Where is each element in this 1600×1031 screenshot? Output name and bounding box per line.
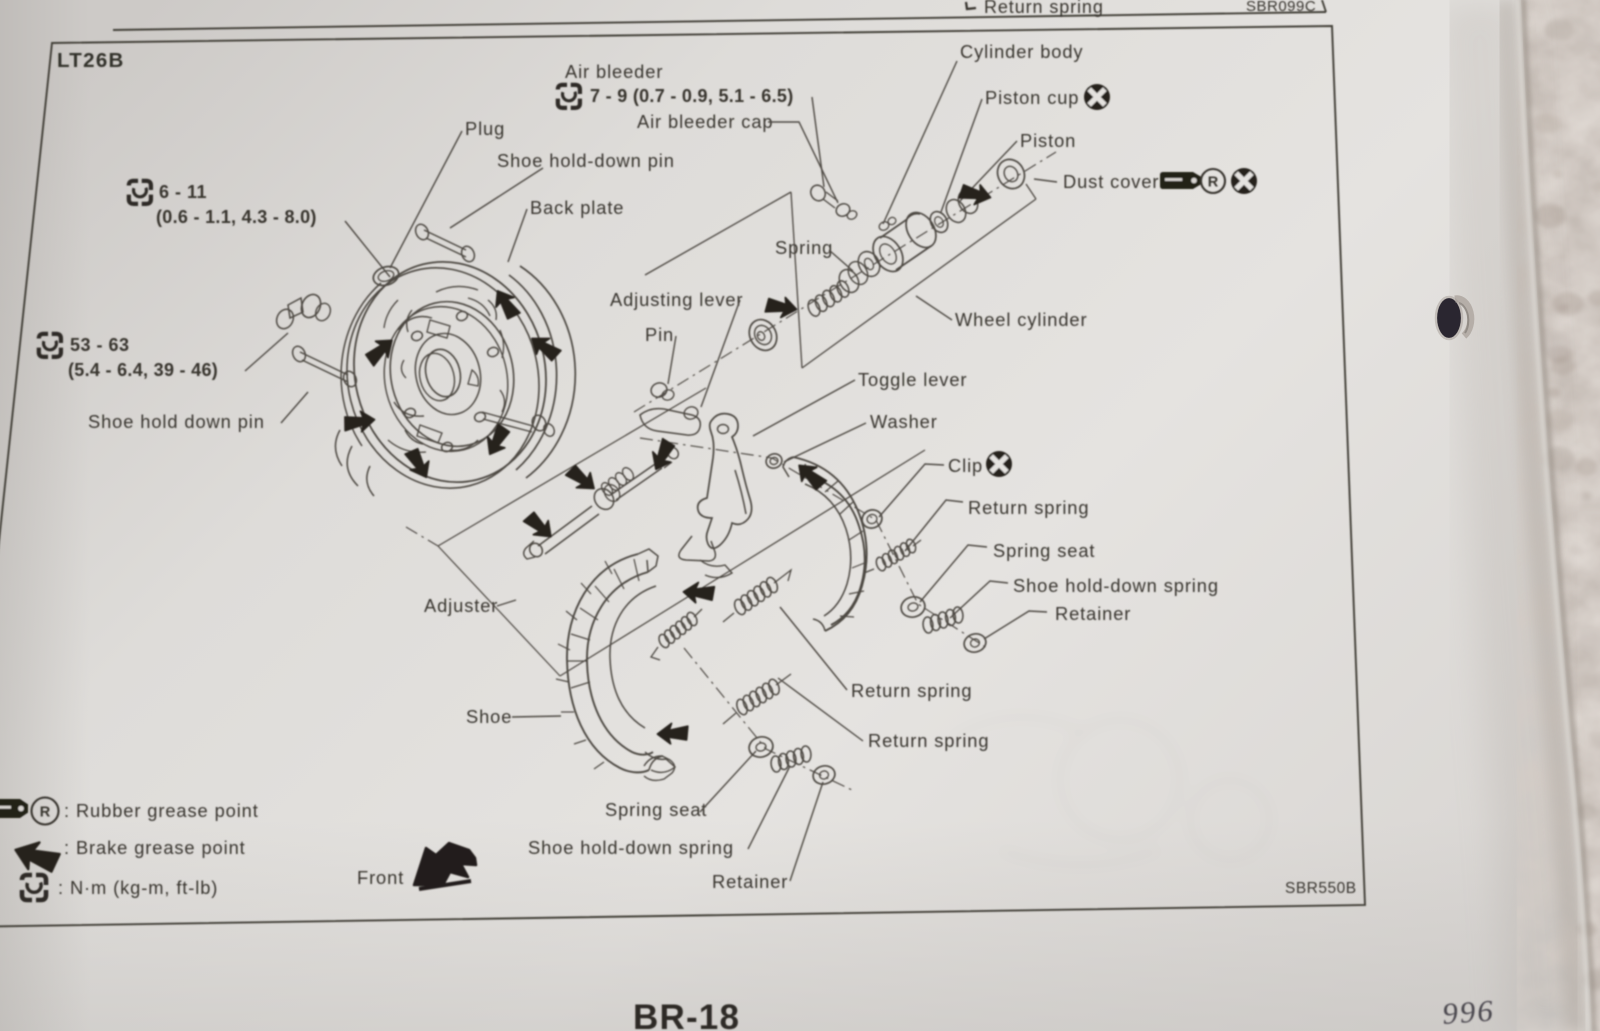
svg-text:Washer: Washer bbox=[870, 411, 938, 432]
svg-text:SBR550B: SBR550B bbox=[1285, 880, 1357, 897]
svg-text:Air bleeder: Air bleeder bbox=[565, 61, 663, 82]
svg-text:(0.6 - 1.1, 4.3 - 8.0): (0.6 - 1.1, 4.3 - 8.0) bbox=[156, 207, 317, 227]
svg-text:R: R bbox=[40, 805, 51, 821]
svg-text:Piston cup: Piston cup bbox=[985, 87, 1079, 108]
svg-text:996: 996 bbox=[1441, 992, 1496, 1031]
svg-text:: Rubber grease point: : Rubber grease point bbox=[64, 800, 259, 821]
svg-text:Pin: Pin bbox=[645, 324, 674, 345]
svg-text:Piston: Piston bbox=[1020, 130, 1076, 151]
svg-text:Return spring: Return spring bbox=[968, 497, 1089, 518]
svg-text:Front: Front bbox=[357, 867, 404, 888]
svg-text:Shoe hold-down spring: Shoe hold-down spring bbox=[1013, 575, 1219, 596]
svg-text:Toggle lever: Toggle lever bbox=[858, 369, 967, 390]
svg-text:7 - 9 (0.7 - 0.9, 5.1 - 6.5): 7 - 9 (0.7 - 0.9, 5.1 - 6.5) bbox=[590, 86, 794, 106]
svg-text:(5.4 - 6.4, 39 - 46): (5.4 - 6.4, 39 - 46) bbox=[68, 360, 218, 380]
svg-text:Plug: Plug bbox=[465, 118, 505, 139]
svg-text:53 - 63: 53 - 63 bbox=[70, 335, 130, 355]
svg-text:Retainer: Retainer bbox=[1055, 603, 1131, 624]
svg-text:Return spring: Return spring bbox=[851, 680, 972, 701]
svg-text:R: R bbox=[1208, 175, 1219, 191]
svg-text:6 - 11: 6 - 11 bbox=[159, 182, 207, 202]
svg-text:Adjusting lever: Adjusting lever bbox=[610, 289, 743, 310]
svg-text:Shoe hold-down pin: Shoe hold-down pin bbox=[497, 150, 675, 171]
svg-text:Clip: Clip bbox=[948, 455, 983, 476]
svg-text:Air bleeder cap: Air bleeder cap bbox=[637, 111, 773, 132]
svg-text:Cylinder body: Cylinder body bbox=[960, 41, 1083, 62]
svg-text:Shoe hold down pin: Shoe hold down pin bbox=[88, 411, 265, 432]
svg-text:Spring seat: Spring seat bbox=[605, 799, 707, 820]
svg-text:LT26B: LT26B bbox=[57, 49, 125, 72]
svg-text:Retainer: Retainer bbox=[712, 871, 788, 892]
svg-text:Dust cover: Dust cover bbox=[1063, 171, 1159, 192]
svg-text:Wheel cylinder: Wheel cylinder bbox=[955, 309, 1088, 330]
svg-text:BR-18: BR-18 bbox=[633, 998, 740, 1031]
svg-text:: Brake grease point: : Brake grease point bbox=[64, 837, 246, 858]
svg-text:Return spring: Return spring bbox=[868, 730, 989, 751]
svg-text:Return spring: Return spring bbox=[984, 0, 1104, 17]
svg-text:Shoe hold-down spring: Shoe hold-down spring bbox=[528, 837, 734, 858]
svg-text:Spring: Spring bbox=[775, 237, 833, 258]
svg-text:Spring seat: Spring seat bbox=[993, 540, 1095, 561]
svg-text:SBR099C: SBR099C bbox=[1246, 0, 1316, 15]
svg-text:Back plate: Back plate bbox=[530, 197, 624, 218]
svg-text:: N·m (kg-m, ft-lb): : N·m (kg-m, ft-lb) bbox=[58, 877, 218, 898]
svg-text:Shoe: Shoe bbox=[466, 706, 512, 727]
